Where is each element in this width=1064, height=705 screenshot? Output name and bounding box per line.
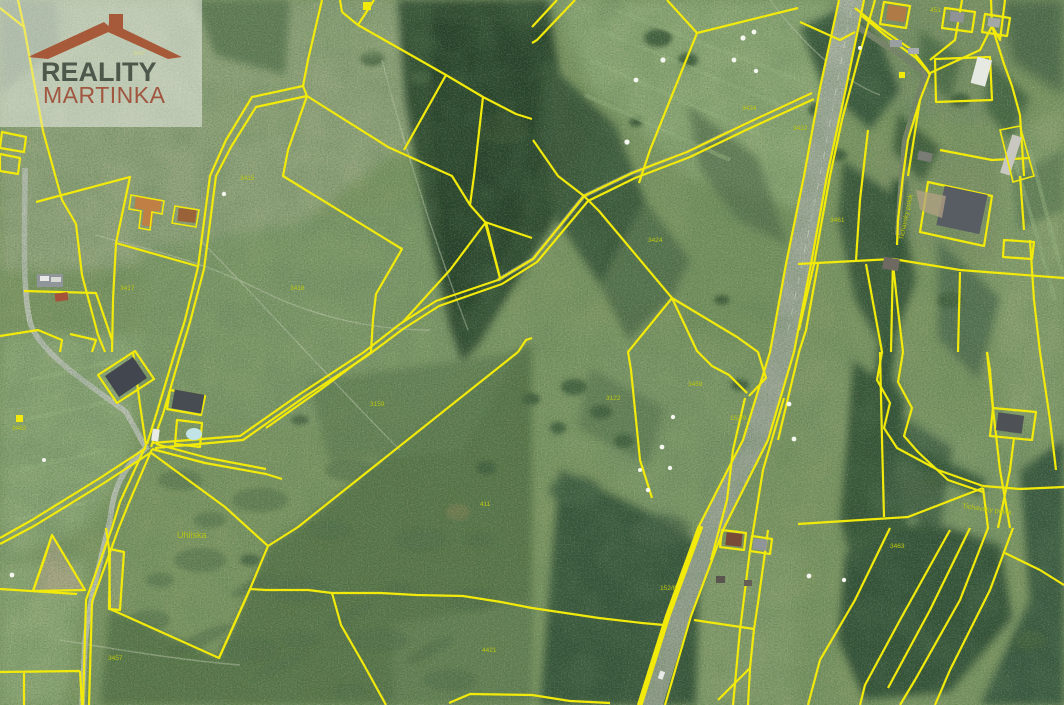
svg-text:3159: 3159: [370, 401, 385, 408]
svg-text:3463: 3463: [890, 543, 905, 550]
svg-text:152/8: 152/8: [660, 585, 677, 592]
svg-text:3459: 3459: [688, 381, 703, 388]
svg-text:3424: 3424: [648, 237, 663, 244]
svg-text:3415: 3415: [240, 175, 255, 182]
svg-text:MARTINKA: MARTINKA: [43, 82, 166, 108]
svg-text:152/9: 152/9: [730, 415, 747, 422]
svg-text:3418: 3418: [290, 285, 305, 292]
svg-text:3122: 3122: [606, 395, 621, 402]
svg-text:3417: 3417: [120, 285, 135, 292]
svg-text:3461: 3461: [830, 217, 845, 224]
svg-text:4421: 4421: [482, 647, 497, 654]
svg-text:Uhliska: Uhliska: [177, 530, 207, 540]
svg-text:451: 451: [930, 7, 941, 14]
svg-text:3462: 3462: [12, 425, 27, 432]
svg-text:411: 411: [480, 501, 491, 508]
svg-text:3422: 3422: [793, 125, 808, 132]
svg-text:3457: 3457: [108, 655, 123, 662]
svg-text:3434: 3434: [742, 105, 757, 112]
